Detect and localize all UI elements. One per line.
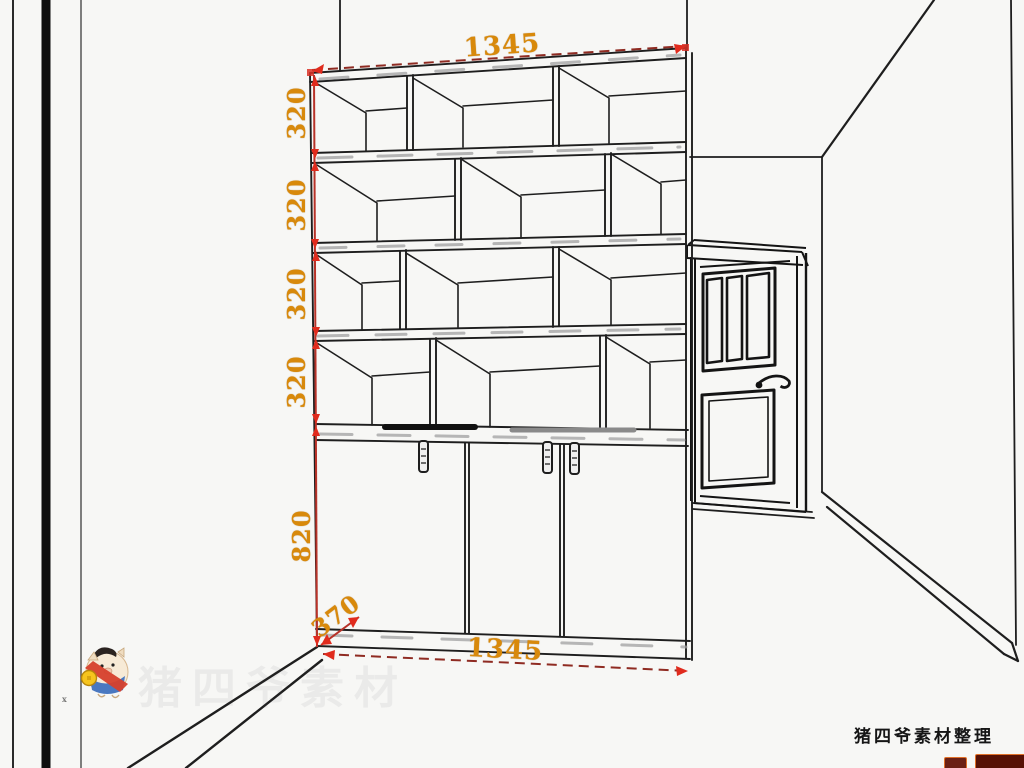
cabinet-handles [419,441,579,474]
shelf-unit [310,48,692,660]
dim-label-shelf-height-1: 320 [285,86,309,139]
furniture-design-drawing: x 猪四爷素材 1345 320 320 320 320 820 370 134… [0,0,1024,768]
dim-label-cabinet-height: 820 [290,509,314,562]
door-lower-panel [702,390,774,488]
dim-label-shelf-height-2: 320 [285,178,309,231]
door-glass-pane-1 [707,278,722,363]
left-wall-bar [42,0,51,768]
credit-text: 猪四爷素材整理 [854,722,994,747]
corner-logo-fragment-1 [944,757,967,768]
svg-text:x: x [62,694,67,704]
door-glass-pane-3 [747,273,769,359]
dim-label-top-width: 1345 [463,30,541,61]
pig-mascot-watermark: x [62,647,128,704]
room-door [687,240,808,512]
base-cabinet [419,441,579,636]
right-wall-edge-line [1011,0,1016,645]
baseboard-right [822,492,1018,661]
door-slab-bottom [700,496,790,503]
door-glass-pane-2 [727,276,742,361]
door-handle-icon [756,376,790,388]
dim-label-bottom-width: 1345 [466,635,544,665]
dimension-lines [307,44,689,676]
corner-logo-fragment-2 [975,754,1024,768]
door-lower-panel-inner [709,397,768,481]
baseboard-left [128,647,322,768]
dim-label-shelf-height-4: 320 [285,355,309,408]
door-glass-frame [703,268,775,371]
ceiling-edge-line [822,0,934,157]
dim-label-shelf-height-3: 320 [285,267,309,320]
